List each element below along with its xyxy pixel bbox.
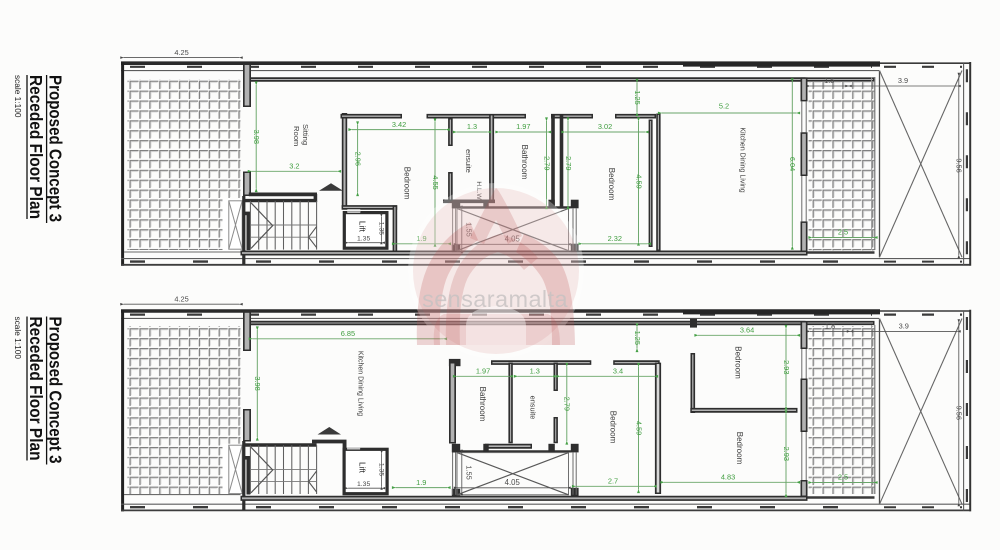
svg-text:Bedroom: Bedroom xyxy=(608,411,617,444)
svg-text:1.35: 1.35 xyxy=(377,222,384,235)
svg-text:1.25: 1.25 xyxy=(633,331,642,345)
svg-text:3.42: 3.42 xyxy=(392,120,406,129)
svg-text:Bedroom: Bedroom xyxy=(734,346,743,379)
svg-text:Receded Floor Plan: Receded Floor Plan xyxy=(26,317,46,461)
svg-text:4.83: 4.83 xyxy=(721,473,735,482)
svg-text:Proposed Concept 3: Proposed Concept 3 xyxy=(46,75,66,222)
svg-text:2.93: 2.93 xyxy=(782,447,791,461)
svg-text:1.8: 1.8 xyxy=(825,322,835,331)
svg-text:1.9: 1.9 xyxy=(416,478,426,487)
svg-text:3.9: 3.9 xyxy=(899,322,909,331)
svg-text:2.93: 2.93 xyxy=(782,360,791,374)
svg-text:Bedroom: Bedroom xyxy=(607,168,616,201)
svg-text:2.5: 2.5 xyxy=(838,473,848,482)
svg-text:2.79: 2.79 xyxy=(564,156,573,170)
svg-text:Bedroom: Bedroom xyxy=(403,167,412,200)
svg-text:3.64: 3.64 xyxy=(740,326,754,335)
svg-text:1.5: 1.5 xyxy=(824,76,834,85)
svg-text:scale 1:100: scale 1:100 xyxy=(13,75,23,118)
svg-text:3.9: 3.9 xyxy=(898,76,908,85)
svg-text:3.4: 3.4 xyxy=(613,367,623,376)
svg-text:4.25: 4.25 xyxy=(174,294,188,303)
svg-text:2.5: 2.5 xyxy=(838,228,848,237)
svg-text:Bathroom: Bathroom xyxy=(520,145,529,180)
svg-text:2.32: 2.32 xyxy=(608,234,622,243)
svg-text:9.56: 9.56 xyxy=(955,158,964,172)
svg-text:1.97: 1.97 xyxy=(516,122,530,131)
svg-text:sensaramalta: sensaramalta xyxy=(422,286,568,312)
svg-text:Kitchen Dining Living: Kitchen Dining Living xyxy=(356,351,363,416)
svg-text:6.04: 6.04 xyxy=(788,157,797,171)
svg-text:1.25: 1.25 xyxy=(633,90,642,104)
svg-text:ensuite: ensuite xyxy=(528,396,537,420)
svg-text:4.59: 4.59 xyxy=(634,174,643,188)
svg-text:2.7: 2.7 xyxy=(608,477,618,486)
svg-text:4.25: 4.25 xyxy=(174,48,188,57)
svg-text:2.96: 2.96 xyxy=(353,152,362,166)
svg-text:1.3: 1.3 xyxy=(530,367,540,376)
svg-text:3.02: 3.02 xyxy=(598,122,612,131)
svg-text:6.85: 6.85 xyxy=(341,329,355,338)
svg-text:Lift: Lift xyxy=(358,462,367,474)
svg-text:3.2: 3.2 xyxy=(289,162,299,171)
svg-text:5.2: 5.2 xyxy=(719,102,729,111)
svg-text:2.79: 2.79 xyxy=(542,156,551,170)
svg-text:2.79: 2.79 xyxy=(563,397,572,411)
svg-text:1.55: 1.55 xyxy=(465,465,474,479)
svg-text:3.98: 3.98 xyxy=(252,130,261,144)
svg-text:Proposed Concept 3: Proposed Concept 3 xyxy=(46,317,66,464)
svg-text:Lift: Lift xyxy=(358,221,367,233)
svg-text:Kitchen Dining Living: Kitchen Dining Living xyxy=(739,127,746,192)
svg-text:1.35: 1.35 xyxy=(357,236,370,243)
svg-text:Bathroom: Bathroom xyxy=(478,387,487,422)
svg-text:1.3: 1.3 xyxy=(467,122,477,131)
svg-text:Bedroom: Bedroom xyxy=(735,432,744,465)
svg-text:4.05: 4.05 xyxy=(505,478,521,487)
svg-text:9.56: 9.56 xyxy=(955,406,964,420)
svg-text:Receded Floor Plan: Receded Floor Plan xyxy=(26,75,46,219)
svg-text:1.35: 1.35 xyxy=(357,481,370,488)
svg-text:4.59: 4.59 xyxy=(634,421,643,435)
svg-text:4.55: 4.55 xyxy=(431,175,440,189)
svg-text:ensuite: ensuite xyxy=(464,149,473,173)
svg-text:Sitting: Sitting xyxy=(301,124,310,145)
svg-text:1.35: 1.35 xyxy=(378,463,385,476)
svg-text:1.97: 1.97 xyxy=(476,367,490,376)
svg-text:scale 1:100: scale 1:100 xyxy=(13,317,23,360)
svg-text:3.98: 3.98 xyxy=(253,376,262,390)
svg-text:Room: Room xyxy=(292,126,301,146)
